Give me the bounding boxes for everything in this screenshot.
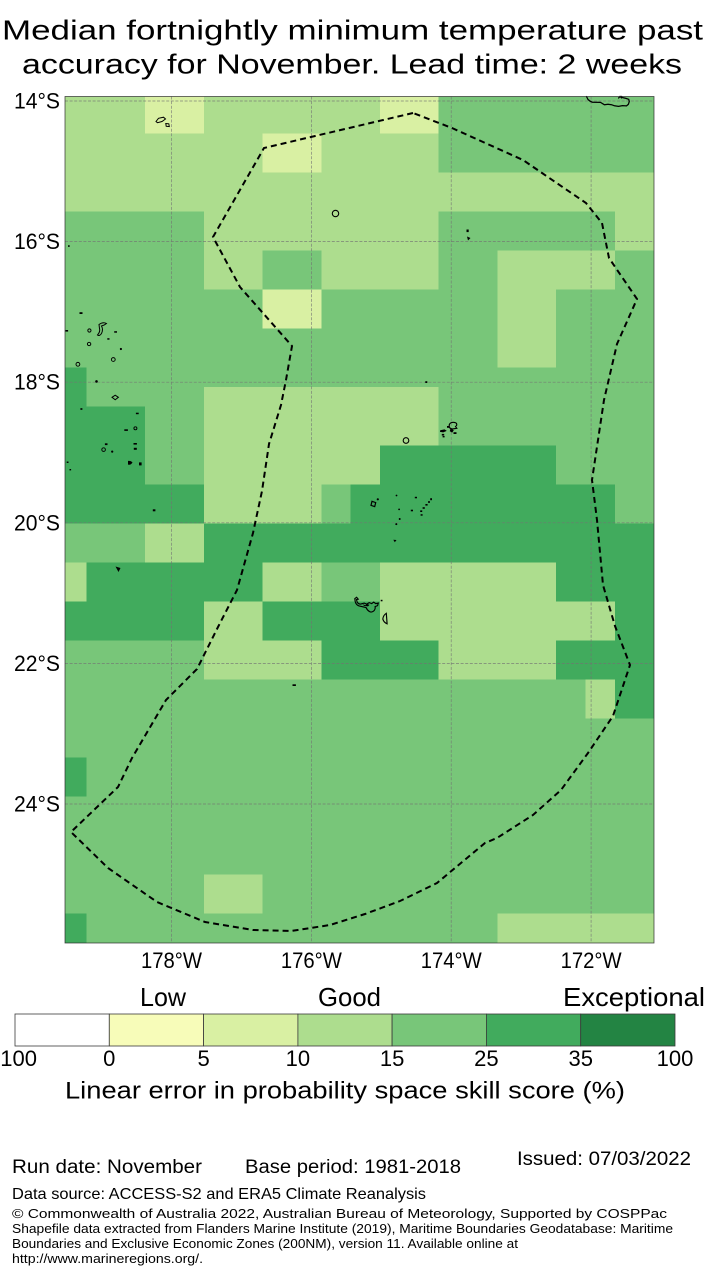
svg-text:172°W: 172°W <box>561 948 622 973</box>
svg-text:100: 100 <box>657 1046 694 1071</box>
svg-text:Shapefile data extracted from: Shapefile data extracted from Flanders M… <box>12 1221 673 1236</box>
svg-text:Linear error in probability sp: Linear error in probability space skill … <box>65 1078 625 1105</box>
svg-text:5: 5 <box>197 1046 209 1071</box>
svg-text:22°S: 22°S <box>14 651 60 676</box>
svg-text:174°W: 174°W <box>421 948 482 973</box>
svg-text:accuracy for November. Lead ti: accuracy for November. Lead time: 2 week… <box>22 49 682 80</box>
svg-text:178°W: 178°W <box>141 948 202 973</box>
svg-text:© Commonwealth of Australia 20: © Commonwealth of Australia 2022, Austra… <box>12 1206 668 1221</box>
svg-text:http://www.marineregions.org/.: http://www.marineregions.org/. <box>12 1251 203 1266</box>
svg-text:24°S: 24°S <box>14 792 60 817</box>
svg-text:-100: -100 <box>0 1046 37 1071</box>
svg-text:20°S: 20°S <box>14 510 60 535</box>
svg-text:15: 15 <box>380 1046 404 1071</box>
svg-text:25: 25 <box>474 1046 498 1071</box>
svg-text:0: 0 <box>103 1046 115 1071</box>
svg-text:Good: Good <box>318 982 381 1012</box>
svg-text:16°S: 16°S <box>14 229 60 254</box>
svg-text:Boundaries and Exclusive Econo: Boundaries and Exclusive Economic Zones … <box>12 1236 518 1251</box>
svg-text:Base period: 1981-2018: Base period: 1981-2018 <box>245 1157 461 1178</box>
svg-text:14°S: 14°S <box>14 89 60 114</box>
svg-text:Run date: November: Run date: November <box>12 1157 203 1178</box>
svg-text:Data source: ACCESS-S2 and ERA: Data source: ACCESS-S2 and ERA5 Climate … <box>12 1186 426 1203</box>
svg-text:35: 35 <box>568 1046 592 1071</box>
svg-text:Exceptional: Exceptional <box>563 982 705 1012</box>
svg-text:Median fortnightly minimum tem: Median fortnightly minimum temperature p… <box>2 15 703 46</box>
svg-text:176°W: 176°W <box>281 948 342 973</box>
svg-text:Issued: 07/03/2022: Issued: 07/03/2022 <box>517 1149 691 1170</box>
svg-text:10: 10 <box>286 1046 310 1071</box>
svg-text:Low: Low <box>140 982 186 1012</box>
svg-text:18°S: 18°S <box>14 370 60 395</box>
